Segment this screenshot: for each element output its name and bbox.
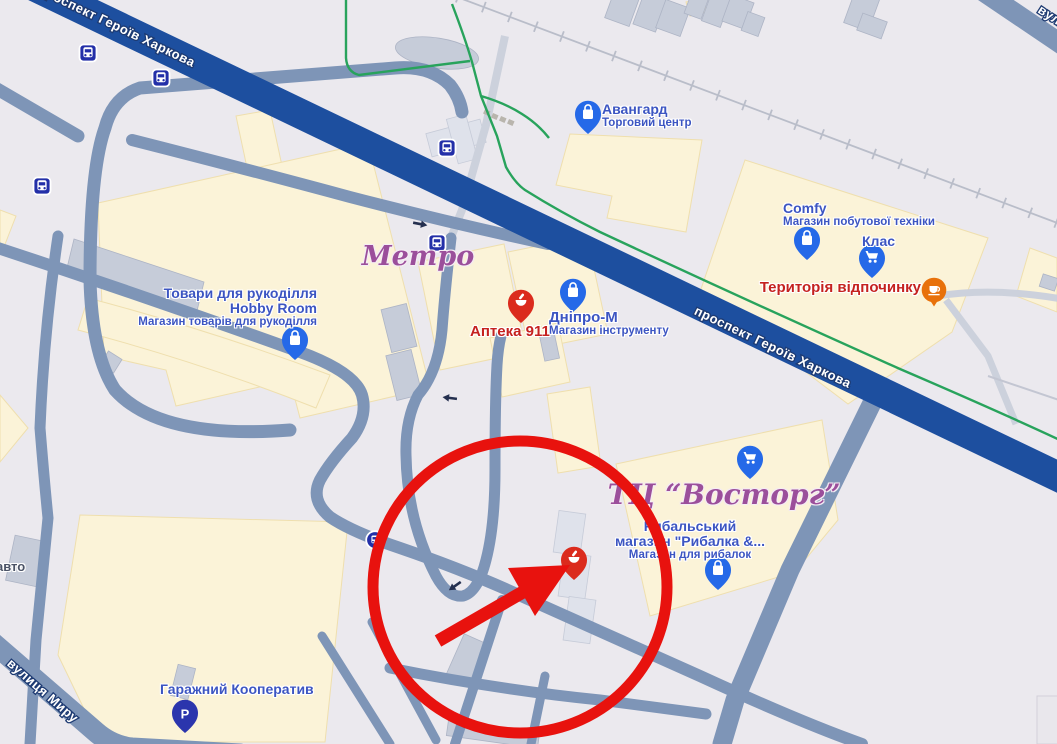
landmark-label-vostorg[interactable]: ТЦ “Восторг” — [608, 478, 841, 511]
poi-title: авто — [0, 559, 25, 574]
poi-label-rybalka[interactable]: Рибальський магазин "Рибалка &... Магази… — [615, 519, 765, 562]
poi-subtitle: Магазин товарів для рукоділля — [138, 316, 317, 329]
poi-label-avto[interactable]: авто — [0, 559, 25, 574]
poi-title: Comfy — [783, 200, 827, 216]
poi-label-terytoriya[interactable]: Територія відпочинку — [760, 280, 921, 295]
poi-title: Дніпро-М — [549, 309, 618, 326]
poi-subtitle: Магазин інструменту — [549, 325, 669, 338]
poi-label-hobby[interactable]: Товари для рукоділля Hobby Room Магазин … — [138, 286, 317, 329]
poi-label-garage[interactable]: Гаражний Кооператив — [160, 682, 314, 697]
poi-title: Авангард — [602, 101, 667, 117]
poi-label-dnipro[interactable]: Дніпро-М Магазин інструменту — [549, 310, 669, 338]
poi-label-comfy[interactable]: Comfy Магазин побутової техніки — [783, 201, 935, 229]
poi-title2: Hobby Room — [230, 300, 317, 316]
poi-title: Територія відпочинку — [760, 279, 921, 296]
poi-label-klas[interactable]: Клас — [862, 234, 895, 249]
map-screenshot: проспект Героїв Харкова проспект Героїв … — [0, 0, 1057, 744]
poi-subtitle: Торговий центр — [602, 117, 691, 130]
poi-title: Товари для рукоділля — [164, 285, 317, 301]
poi-subtitle: Магазин побутової техніки — [783, 216, 935, 229]
poi-label-avangard[interactable]: Авангард Торговий центр — [602, 102, 691, 130]
poi-title: Аптека 911 — [470, 323, 550, 340]
poi-title: Рибальський — [644, 518, 737, 534]
landmark-label-metro[interactable]: Метро — [362, 241, 475, 272]
poi-label-apteka[interactable]: Аптека 911 — [470, 324, 550, 339]
poi-subtitle: Магазин для рибалок — [615, 549, 765, 562]
poi-labels: Авангард Торговий центр Comfy Магазин по… — [0, 0, 1057, 744]
poi-title: Клас — [862, 233, 895, 249]
poi-title2: магазин "Рибалка &... — [615, 533, 765, 549]
poi-title: Гаражний Кооператив — [160, 681, 314, 697]
